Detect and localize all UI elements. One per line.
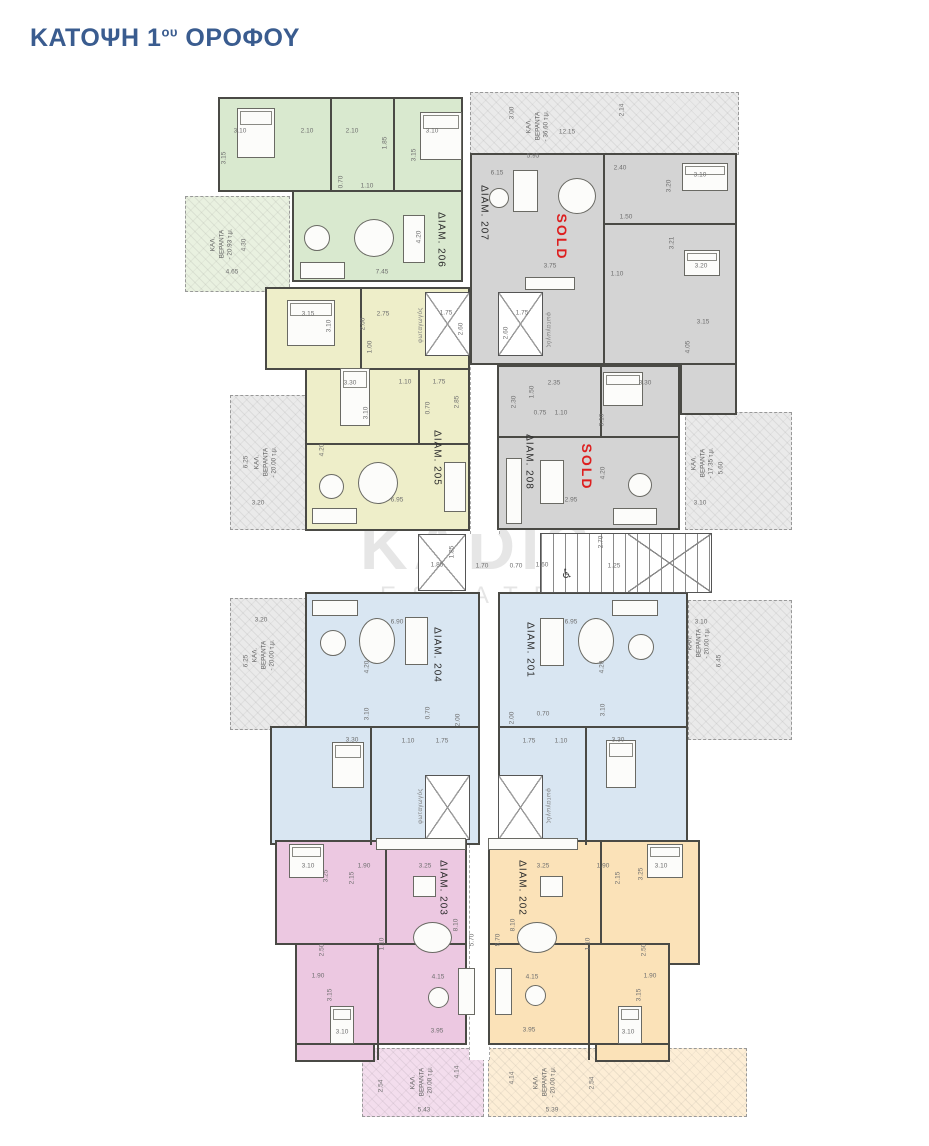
bed-furniture: [618, 1006, 642, 1044]
bed-furniture: [332, 742, 364, 788]
wall-segment: [393, 97, 395, 192]
kitchen-island-furniture: [540, 460, 564, 504]
table-furniture: [413, 876, 436, 897]
apartment-202-area: [488, 943, 670, 1045]
balcony-207-top: [470, 92, 739, 155]
bed-furniture: [684, 250, 720, 276]
bed-furniture: [330, 1006, 354, 1044]
apartment-207-area: [680, 363, 737, 415]
bed-furniture: [237, 108, 275, 158]
kitchen-counter-furniture: [506, 458, 522, 524]
balcony-201-right: [688, 600, 792, 740]
wall-segment: [370, 728, 372, 845]
dining-table-furniture: [358, 462, 398, 504]
sofa-furniture: [495, 968, 512, 1015]
balcony-204-left: [230, 598, 307, 730]
page-title: ΚΑΤΟΨΗ 1ου ΟΡΟΦΟΥ: [30, 24, 300, 53]
apartment-208-area: [497, 365, 680, 530]
dining-table-furniture: [359, 618, 395, 664]
balcony-203-bottom: [362, 1048, 484, 1117]
kitchen-island-furniture: [405, 617, 428, 665]
dining-table-furniture: [413, 922, 452, 953]
kitchen-island-furniture: [444, 462, 466, 512]
bed-furniture: [420, 112, 462, 160]
wall-segment: [305, 443, 470, 445]
wall-segment: [418, 370, 420, 443]
elevator-shaft: [418, 534, 466, 591]
title-text: ΚΑΤΟΨΗ 1: [30, 24, 161, 52]
wall-segment: [377, 945, 379, 1060]
table-furniture: [540, 876, 563, 897]
round-table-furniture: [628, 473, 652, 497]
round-table-furniture: [304, 225, 330, 251]
bed-furniture: [603, 372, 643, 406]
kitchen-island-furniture: [403, 215, 425, 263]
sofa-furniture: [513, 170, 538, 212]
round-table-furniture: [489, 188, 509, 208]
lightwell-shaft: [425, 775, 470, 840]
sofa-furniture: [458, 968, 475, 1015]
dining-table-furniture: [578, 618, 614, 664]
apartment-203-area: [295, 1043, 375, 1062]
wall-segment: [385, 842, 387, 945]
dining-table-furniture: [354, 219, 394, 257]
wall-segment: [330, 97, 332, 192]
balcony-208-right: [685, 412, 792, 530]
lightwell-shaft: [498, 292, 543, 356]
apartment-202-area: [595, 1043, 670, 1062]
wall-segment: [603, 153, 605, 365]
title-text-2: ΟΡΟΦΟΥ: [178, 24, 300, 52]
wall-segment: [585, 728, 587, 845]
sofa-furniture: [312, 600, 358, 616]
floor-plan-canvas: ΚΑΤΟΨΗ 1ου ΟΡΟΦΟΥ KADIS ESTATES: [0, 0, 929, 1146]
wall-segment: [588, 945, 590, 1060]
wall-segment: [497, 436, 680, 438]
sofa-furniture: [613, 508, 657, 525]
bed-furniture: [647, 844, 683, 878]
title-superscript: ου: [161, 25, 178, 40]
bed-furniture: [340, 368, 370, 426]
wall-segment: [600, 367, 602, 438]
kitchen-counter-furniture: [376, 838, 466, 850]
round-table-furniture: [525, 985, 546, 1006]
corridor-lower: [469, 845, 490, 1060]
wall-segment: [600, 842, 602, 945]
round-table-furniture: [320, 630, 346, 656]
round-table-furniture: [628, 634, 654, 660]
bed-furniture: [287, 300, 335, 346]
round-table-furniture: [319, 474, 344, 499]
bed-furniture: [289, 844, 324, 878]
bed-furniture: [606, 740, 636, 788]
dining-table-furniture: [517, 922, 557, 953]
balcony-205-left: [230, 395, 310, 530]
kitchen-counter-furniture: [488, 838, 578, 850]
stair-landing: [628, 534, 711, 592]
lightwell-shaft: [425, 292, 470, 356]
round-table-furniture: [428, 987, 449, 1008]
wall-segment: [605, 223, 737, 225]
sofa-furniture: [312, 508, 357, 524]
balcony-206: [185, 196, 290, 292]
bed-furniture: [682, 163, 728, 191]
lightwell-shaft: [498, 775, 543, 840]
dining-table-furniture: [558, 178, 596, 214]
sofa-furniture: [612, 600, 658, 616]
kitchen-counter-furniture: [525, 277, 575, 290]
wall-segment: [360, 289, 362, 370]
kitchen-island-furniture: [540, 618, 564, 666]
wheelchair-icon: ♿: [561, 566, 573, 582]
sofa-furniture: [300, 262, 345, 279]
